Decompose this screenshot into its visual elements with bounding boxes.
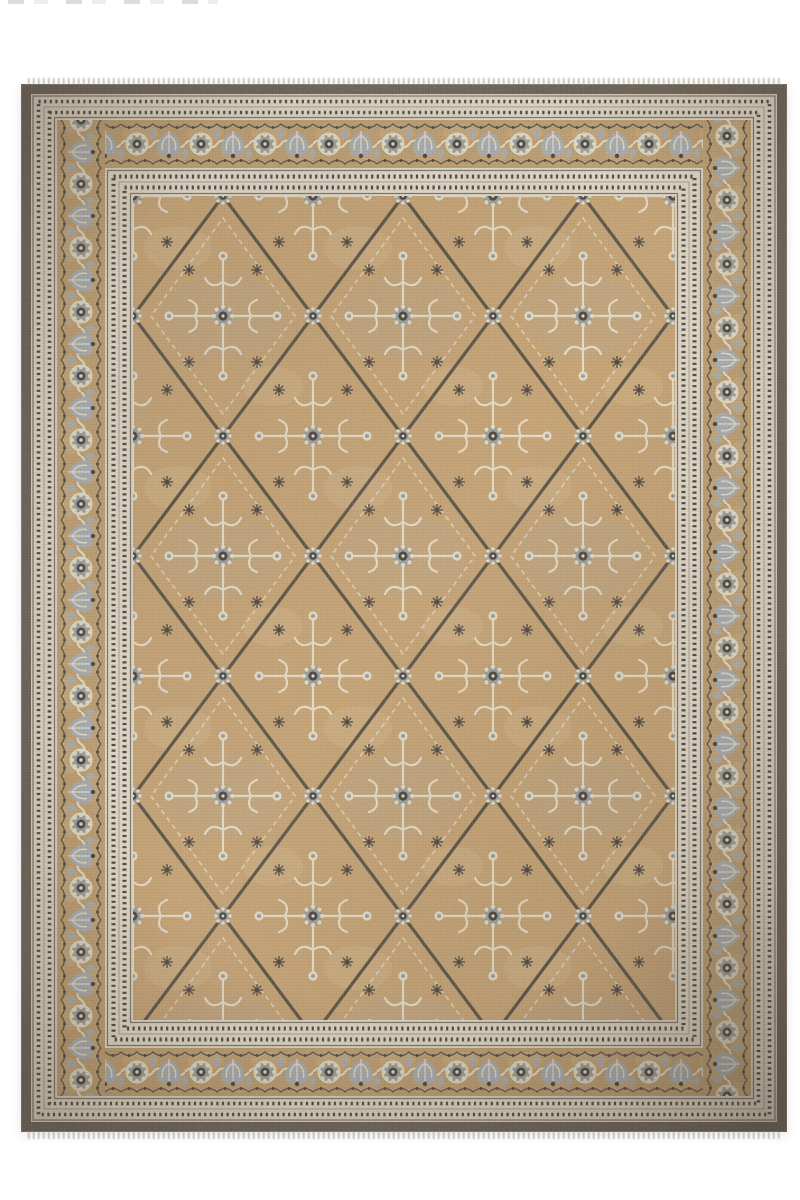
rug-fringe-top [28, 78, 780, 84]
photo-edge-artifact [8, 0, 218, 4]
rug-texture-overlay [21, 84, 787, 1132]
rug-fringe-bottom [28, 1132, 780, 1139]
rug-artwork [21, 84, 787, 1132]
photo-canvas [0, 0, 800, 1200]
rug-photo [21, 84, 787, 1132]
